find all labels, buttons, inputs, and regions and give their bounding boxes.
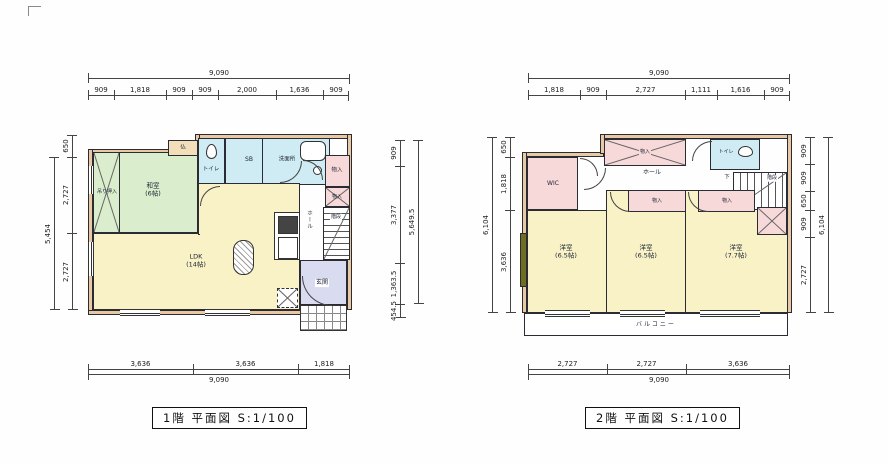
f1-dim-top-segments: 909 1,818 909 909 2,000 1,636 909 xyxy=(88,83,349,96)
kitchen-counter-icon xyxy=(274,212,300,260)
dim-value: 909 xyxy=(580,86,606,94)
dim-value: 3,636 xyxy=(88,360,193,368)
toilet-icon xyxy=(738,146,753,157)
f2-dim-left-total: 6,104 xyxy=(480,137,493,313)
dim-value: 909 xyxy=(192,86,218,94)
dim-value: 3,636 xyxy=(686,360,790,368)
f1-label-storage2: 物入 xyxy=(332,194,342,201)
room-size: (14帖) xyxy=(186,261,206,269)
dim-value: 1,111 xyxy=(685,86,717,94)
dim-value: 1,818 xyxy=(114,86,166,94)
f2-dim-top-total: 9,090 xyxy=(528,66,790,79)
f1-dim-right-segments: 909 3,377 1,363.5 454.5 xyxy=(388,140,401,318)
dim-value: 909 xyxy=(390,146,398,159)
f2-dim-bottom-total: 9,090 xyxy=(528,374,790,387)
f2-window-balcony-2 xyxy=(620,310,665,317)
dim-value: 909 xyxy=(764,86,790,94)
f2-label-room1: 洋室 (6.5帖) xyxy=(555,244,577,261)
dim-value: 1,818 xyxy=(500,173,508,193)
floor2-title: 2階 平面図 S:1/100 xyxy=(596,411,729,425)
f2-dim-right-total: 6,104 xyxy=(816,137,829,313)
dim-value: 909 xyxy=(800,171,808,184)
dim-value: 2,000 xyxy=(218,86,276,94)
dim-value: 650 xyxy=(800,194,808,207)
f1-label-tsurioshiire: 吊り押入 xyxy=(97,189,117,196)
dim-value: 1,818 xyxy=(298,360,350,368)
f2-label-stairs: 階段 xyxy=(766,175,778,182)
f2-dim-top-segments: 1,818 909 2,727 1,111 1,616 909 xyxy=(528,83,790,96)
f1-dim-left-segments: 650 2,727 2,727 xyxy=(60,135,73,310)
room-size: (6帖) xyxy=(145,190,161,198)
f2-label-room2: 洋室 (6.5帖) xyxy=(635,244,657,261)
dim-value: 6,104 xyxy=(482,215,490,235)
dim-value: 909 xyxy=(800,217,808,230)
dim-value: 2,727 xyxy=(528,360,607,368)
f2-dim-right-segments: 909 909 650 909 2,727 xyxy=(798,137,811,313)
f2-label-hall: ホール xyxy=(643,169,661,177)
f1-label-storage1: 物入 xyxy=(331,167,342,174)
dim-value: 2,727 xyxy=(62,261,70,281)
dim-value: 9,090 xyxy=(88,69,350,77)
floor2-title-box: 2階 平面図 S:1/100 xyxy=(585,407,740,429)
f2-label-closet-top: 物入 xyxy=(639,149,651,156)
dim-value: 3,636 xyxy=(500,251,508,271)
f2-dim-bottom-segments: 2,727 2,727 3,636 xyxy=(528,357,790,370)
dim-value: 3,636 xyxy=(193,360,298,368)
toilet-icon xyxy=(206,144,217,159)
f2-room-1 xyxy=(527,210,607,313)
dim-value: 6,104 xyxy=(818,215,826,235)
f1-porch xyxy=(300,305,347,331)
f2-label-down: 下 xyxy=(723,174,731,181)
dim-value: 650 xyxy=(500,140,508,153)
f1-label-shoebox: SB xyxy=(245,156,253,164)
f1-wall-divider xyxy=(262,139,263,184)
f1-dim-bottom-total: 9,090 xyxy=(88,374,350,387)
dim-value: 1,363.5 xyxy=(390,270,398,297)
floorplan-sheet: 9,090 909 1,818 909 909 2,000 1,636 909 … xyxy=(0,0,888,463)
f2-label-closet2: 物入 xyxy=(652,198,662,205)
dim-value: 2,727 xyxy=(607,360,686,368)
f1-room-ldk xyxy=(93,233,300,310)
dim-value: 454.5 xyxy=(390,301,398,321)
floor1-title-box: 1階 平面図 S:1/100 xyxy=(152,407,307,429)
f2-label-balcony: バルコニー xyxy=(636,321,676,329)
dim-value: 1,636 xyxy=(276,86,323,94)
dim-value: 909 xyxy=(800,144,808,157)
f1-dim-bottom-segments: 3,636 3,636 1,818 xyxy=(88,357,350,370)
dim-value: 2,727 xyxy=(62,185,70,205)
room-size: (7.7帖) xyxy=(725,252,747,260)
f2-window-balcony-3 xyxy=(700,310,760,317)
f2-closet-corner xyxy=(757,207,787,235)
floor1-title: 1階 平面図 S:1/100 xyxy=(163,411,296,425)
f1-window-bottom-1 xyxy=(120,309,160,316)
f2-window-balcony-1 xyxy=(545,310,590,317)
sheet-corner-mark xyxy=(28,6,41,16)
f1-label-butsudan: 仏 xyxy=(180,144,186,151)
f1-label-toilet: トイレ xyxy=(203,166,220,173)
f2-label-wic: WIC xyxy=(547,180,559,188)
x-hatch-icon xyxy=(278,289,297,307)
dim-value: 909 xyxy=(323,86,349,94)
f1-window-left-1 xyxy=(88,166,94,194)
dim-value: 9,090 xyxy=(88,376,350,384)
f1-label-ldk: LDK (14帖) xyxy=(186,253,206,270)
dim-value: 1,616 xyxy=(717,86,764,94)
f1-dim-top-total: 9,090 xyxy=(88,66,350,79)
f2-toilet-door-arc xyxy=(692,141,712,161)
f2-wic-door-arc xyxy=(580,158,598,176)
f1-island-table xyxy=(233,240,254,275)
dim-value: 9,090 xyxy=(528,69,790,77)
dim-value: 650 xyxy=(62,139,70,152)
dim-value: 5,649.5 xyxy=(408,209,416,236)
f1-label-stairs: 階段 xyxy=(330,214,342,221)
f2-label-room3: 洋室 (7.7帖) xyxy=(725,244,747,261)
f1-dim-right-total: 5,649.5 xyxy=(406,140,419,304)
f2-label-toilet: トイレ xyxy=(718,149,733,156)
f1-floor-hatch xyxy=(277,288,298,308)
f1-label-washitsu: 和室 (6帖) xyxy=(145,182,161,199)
f2-window-shutter xyxy=(520,233,527,287)
dim-value: 5,454 xyxy=(44,223,52,243)
f1-label-hall: ホール xyxy=(305,210,313,230)
dim-value: 2,727 xyxy=(800,265,808,285)
dim-value: 9,090 xyxy=(528,376,790,384)
x-hatch-icon xyxy=(758,208,786,234)
f2-dim-left-segments: 650 1,818 3,636 xyxy=(498,137,511,313)
room-size: (6.5帖) xyxy=(555,252,577,260)
f1-window-bottom-2 xyxy=(205,309,250,316)
dim-value: 1,818 xyxy=(528,86,580,94)
f1-dim-left-total: 5,454 xyxy=(42,157,55,310)
dim-value: 3,377 xyxy=(390,204,398,224)
f2-label-closet3: 物入 xyxy=(722,198,732,205)
dim-value: 2,727 xyxy=(606,86,685,94)
f1-window-left-2 xyxy=(88,242,94,276)
bathtub-icon xyxy=(300,141,326,161)
dim-value: 909 xyxy=(88,86,114,94)
room-size: (6.5帖) xyxy=(635,252,657,260)
dim-value: 909 xyxy=(166,86,192,94)
